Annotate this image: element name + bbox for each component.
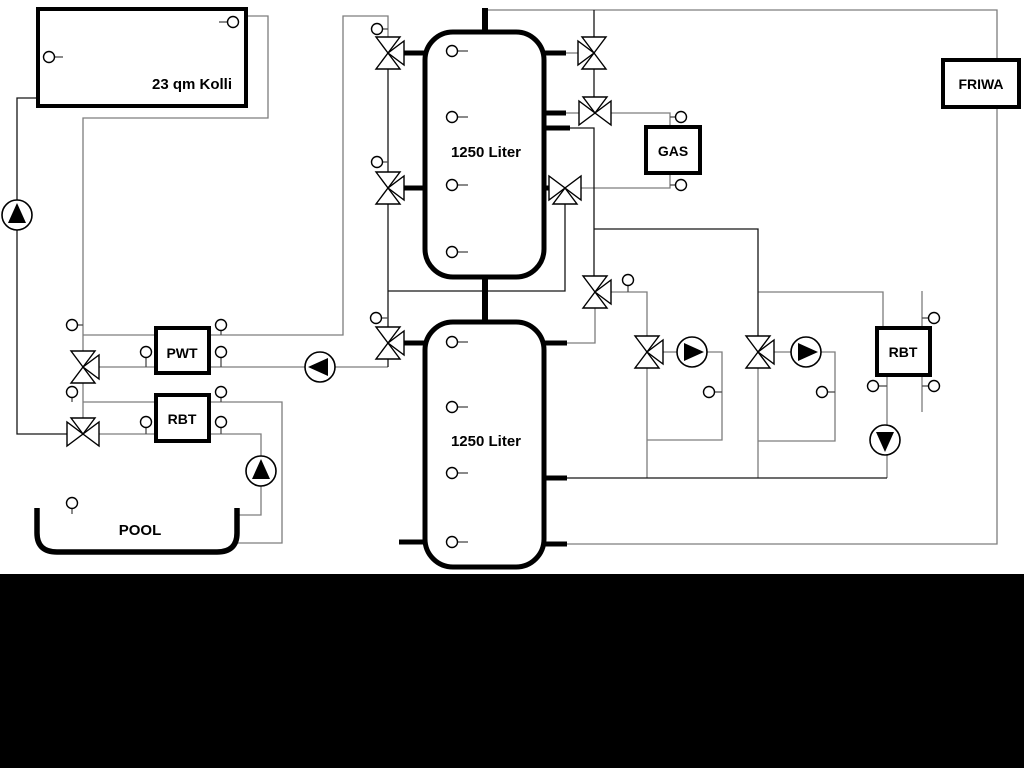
temp-sensor <box>67 387 78 403</box>
temp-sensor <box>817 387 836 398</box>
temp-sensor <box>67 320 84 331</box>
three-way-valve <box>578 37 606 69</box>
temp-sensor <box>704 387 723 398</box>
three-way-valve <box>549 176 581 204</box>
temp-sensor <box>141 347 152 368</box>
gas-label: GAS <box>658 143 688 159</box>
temp-sensor <box>372 157 389 168</box>
temp-sensor <box>216 347 227 368</box>
pump-up <box>246 456 276 486</box>
schematic-canvas: 23 qm Kolli 1250 Liter 1250 Liter GAS FR… <box>0 0 1024 768</box>
three-way-valve <box>579 97 611 125</box>
temp-sensor <box>216 320 227 336</box>
temp-sensor <box>141 417 152 435</box>
pump-up <box>2 200 32 230</box>
temp-sensor <box>371 313 389 324</box>
temp-sensor <box>670 180 687 191</box>
temp-sensor <box>372 24 389 35</box>
temp-sensor <box>670 112 687 123</box>
tank-bottom-label: 1250 Liter <box>451 433 521 450</box>
temp-sensor <box>216 417 227 435</box>
three-way-valve <box>583 276 611 308</box>
pool-label: POOL <box>119 522 162 539</box>
temp-sensor <box>922 381 940 392</box>
tank-top-label: 1250 Liter <box>451 144 521 161</box>
temp-sensor <box>868 381 888 392</box>
friwa-label: FRIWA <box>958 76 1003 92</box>
temp-sensor <box>216 387 227 403</box>
temp-sensor <box>67 498 78 515</box>
three-way-valve <box>67 418 99 446</box>
pump-down <box>870 425 900 455</box>
rbt-left-label: RBT <box>168 411 197 427</box>
pwt-label: PWT <box>166 345 198 361</box>
three-way-valve <box>376 37 404 69</box>
temp-sensor <box>922 313 940 324</box>
three-way-valve <box>635 336 663 368</box>
pump-right <box>677 337 707 367</box>
rbt-right-label: RBT <box>889 344 918 360</box>
three-way-valve <box>376 327 404 359</box>
footer-black-bar <box>0 574 1024 768</box>
three-way-valve <box>746 336 774 368</box>
collector-label: 23 qm Kolli <box>152 76 232 93</box>
temp-sensor <box>623 275 634 293</box>
three-way-valve <box>71 351 99 383</box>
pump-right <box>791 337 821 367</box>
pump-left <box>305 352 335 382</box>
hydraulic-schematic: 23 qm Kolli 1250 Liter 1250 Liter GAS FR… <box>0 0 1024 768</box>
three-way-valve <box>376 172 404 204</box>
